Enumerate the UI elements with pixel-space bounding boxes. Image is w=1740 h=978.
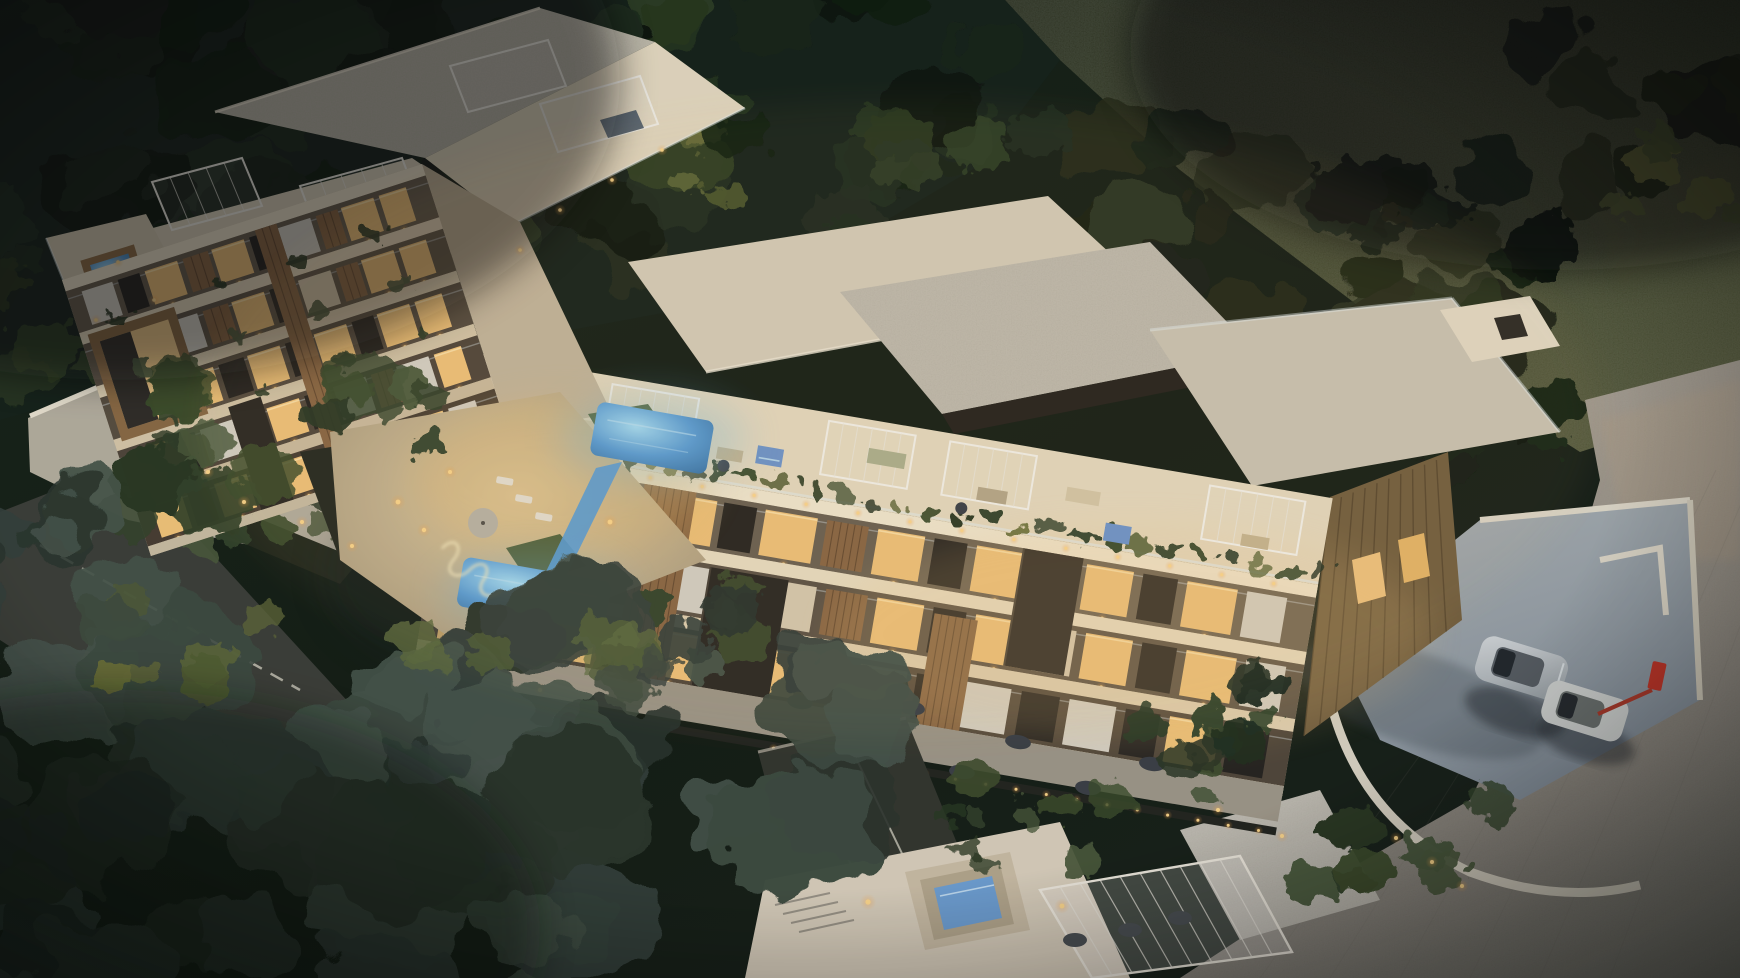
dusk-tint-overlay <box>0 0 1740 978</box>
architectural-render-canvas <box>0 0 1740 978</box>
render-stage <box>0 0 1740 978</box>
